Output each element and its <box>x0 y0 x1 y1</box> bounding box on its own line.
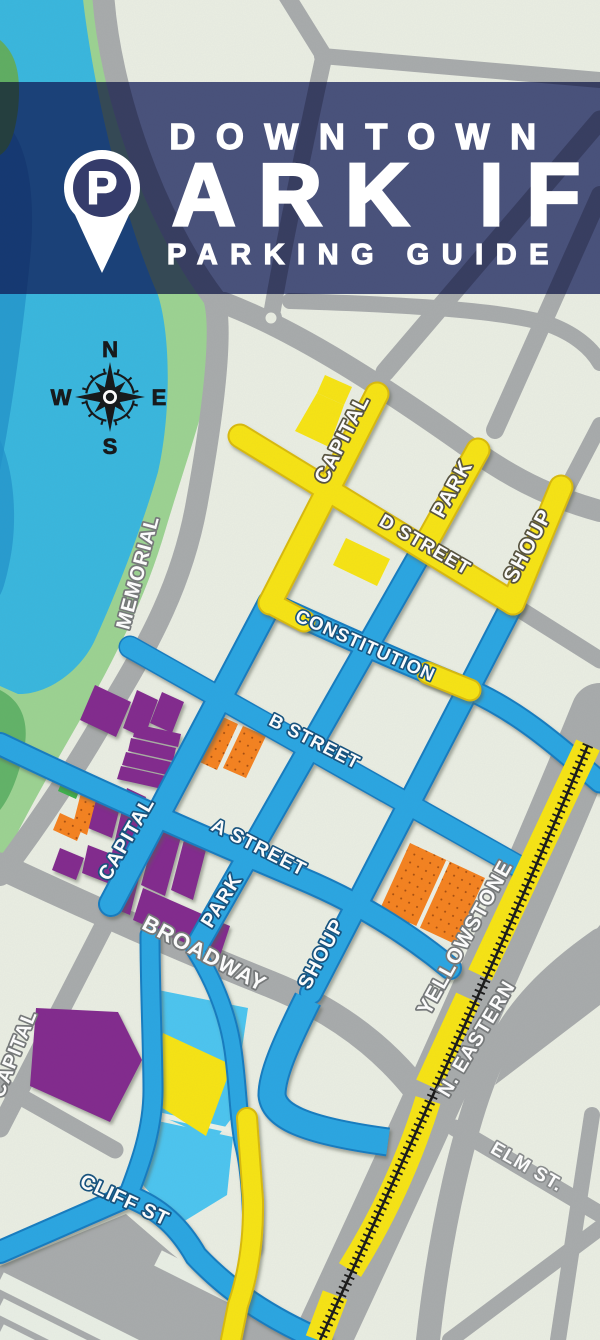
svg-text:ARK IF: ARK IF <box>172 145 600 244</box>
svg-text:PARKING GUIDE: PARKING GUIDE <box>167 239 561 271</box>
svg-text:P: P <box>87 162 118 214</box>
